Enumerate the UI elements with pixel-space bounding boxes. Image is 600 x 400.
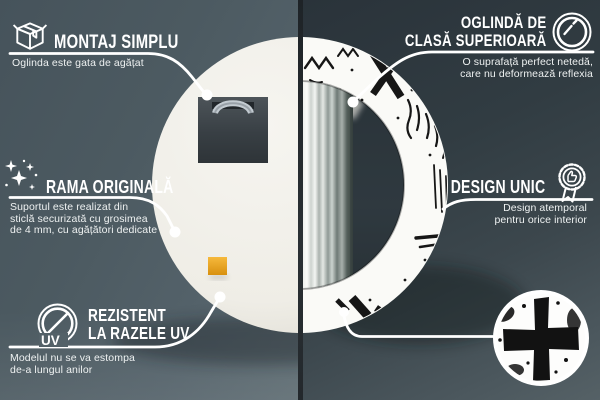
sparkles-icon [3,158,41,196]
callout-description-line1: Modelul nu se va estompa [10,353,135,365]
callout-description-line2: care nu deformează reflexia [460,69,593,81]
package-box-icon [12,16,48,52]
callout-description: Design atemporal pentru orice interior [494,203,587,226]
callout-title: DESIGN UNIC [450,178,545,197]
detail-zoom-circle [493,292,587,384]
callout-description: O suprafață perfect netedă, care nu defo… [460,57,593,80]
callout-description-line1: Design atemporal [494,203,587,215]
callout-description-line2: pentru orice interior [494,215,587,227]
uv-label: UV [41,333,60,347]
award-badge-icon [551,160,593,204]
uv-protection-icon: UV [34,300,81,347]
callout-description-line3: de 4 mm, cu agățători dedicate [10,225,157,237]
callout-dot-rama [170,227,181,238]
callout-description-line1: Suportul este realizat din [10,202,157,214]
callout-design: DESIGN UNIC [424,160,593,204]
callout-description: Oglinda este gata de agățat [12,58,144,70]
callout-montaj: MONTAJ SIMPLU [12,16,214,52]
callout-uv: UV REZISTENT LA RAZELE UV [34,300,218,347]
callout-description-line1: O suprafață perfect netedă, [460,57,593,69]
curtain-reflection [303,81,353,289]
callout-description-line2: de-a lungul anilor [10,365,135,377]
callout-title-line2: CLASĂ SUPERIOARĂ [404,32,546,51]
callout-title: OGLINDĂ DE CLASĂ SUPERIOARĂ [404,14,546,51]
callout-title: REZISTENT LA RAZELE UV [88,306,190,342]
callout-title-line1: REZISTENT [88,306,190,324]
callout-title-line1: OGLINDĂ DE [404,14,546,33]
callout-oglinda: OGLINDĂ DE CLASĂ SUPERIOARĂ [365,11,593,53]
callout-dot-oglinda [348,97,359,108]
callout-rama: RAMA ORIGINALĂ [3,158,210,196]
callout-dot-zoom [339,307,349,317]
callout-description: Modelul nu se va estompa de-a lungul ani… [10,353,135,376]
callout-dot-montaj [202,90,213,101]
mirror-shine-icon [551,11,593,53]
callout-title: RAMA ORIGINALĂ [46,178,174,197]
mounting-pad [208,257,227,275]
callout-title-line2: LA RAZELE UV [88,324,190,342]
mirror-hanger-plate [198,97,268,163]
product-photo: MONTAJ SIMPLU Oglinda este gata de agăța… [0,0,600,400]
callout-title: MONTAJ SIMPLU [54,34,179,53]
callout-description: Suportul este realizat din sticlă securi… [10,202,157,237]
